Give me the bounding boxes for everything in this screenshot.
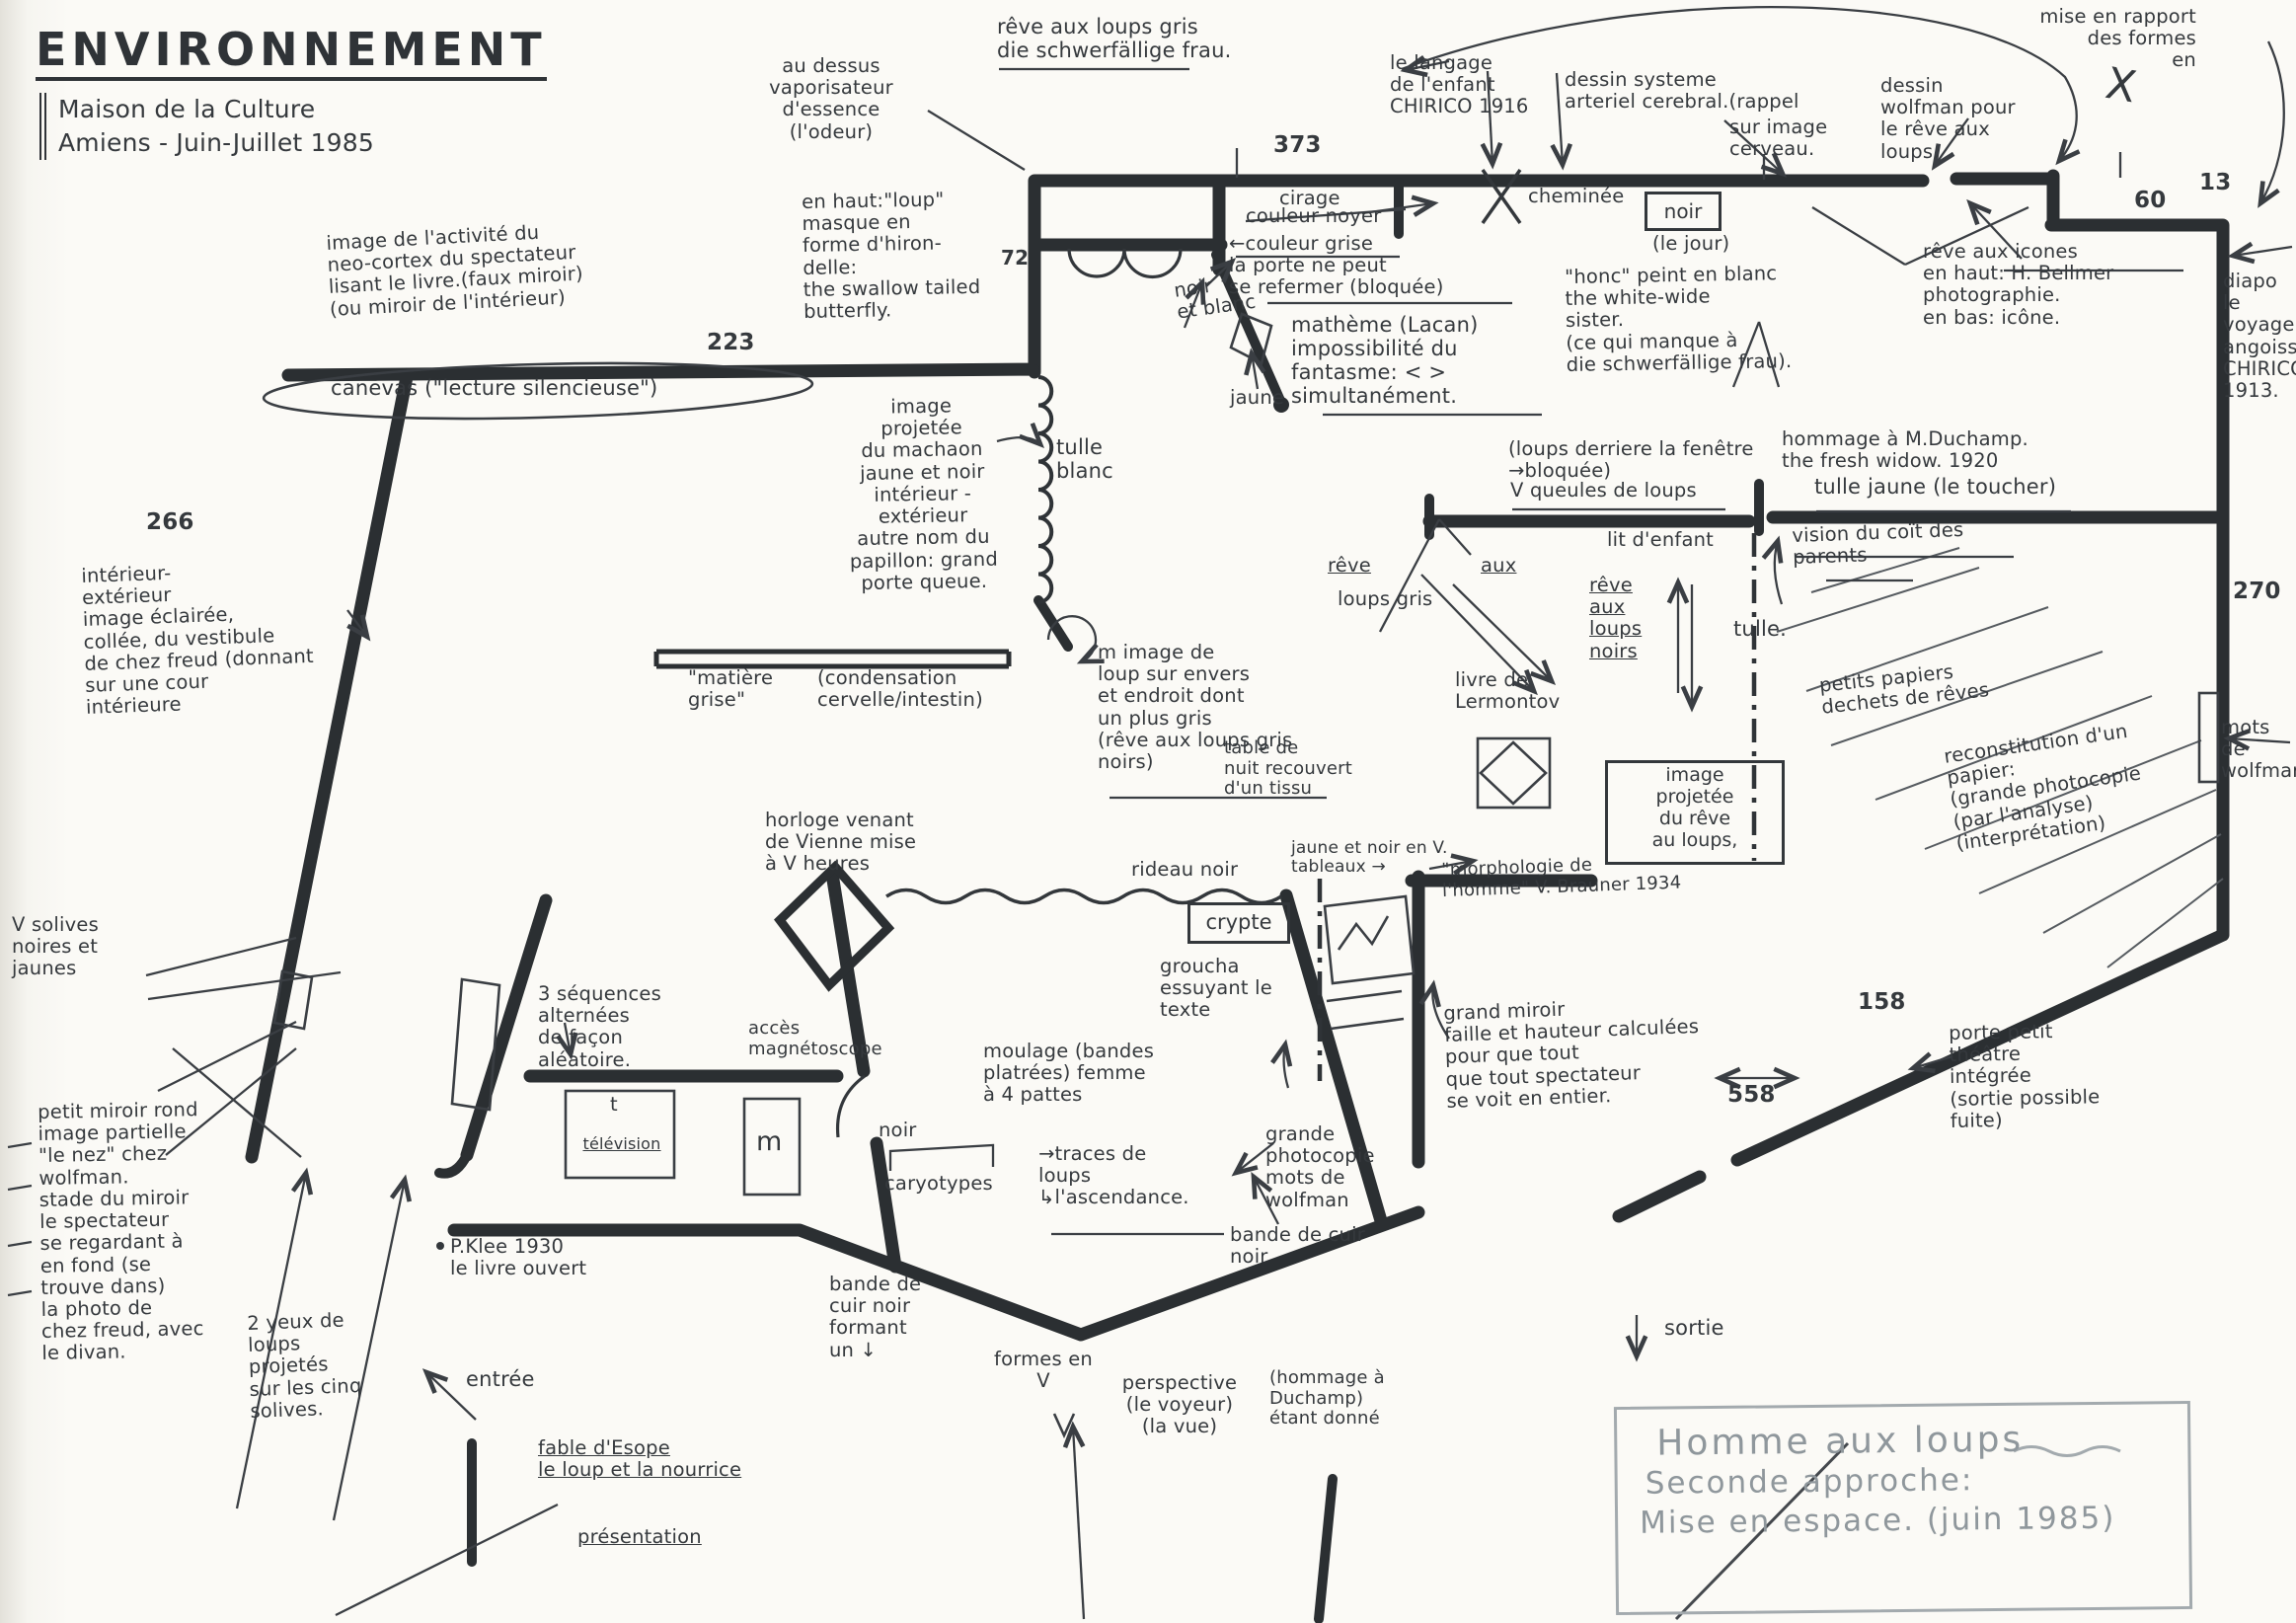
- note-couleur-noyer: couleur noyer: [1246, 205, 1381, 227]
- note-aux: aux: [1481, 555, 1516, 577]
- note-livre-lermontov: livre de Lermontov: [1455, 669, 1560, 713]
- note-honc-white-wide-sister: "honc" peint en blanc the white-wide sis…: [1565, 263, 1793, 376]
- label-box-noir: noir: [1645, 192, 1722, 231]
- note-queules-de-loups: V queules de loups: [1510, 480, 1697, 502]
- note-traces-de-loups: →traces de loups ↳l'ascendance.: [1038, 1143, 1189, 1209]
- note-acces-magnetoscope: accès magnétoscope: [748, 1019, 882, 1059]
- side-panel-rect: [452, 979, 499, 1110]
- note-moulage-femme: moulage (bandes platrées) femme à 4 patt…: [983, 1041, 1154, 1107]
- note-masque-hirondelle: en haut:"loup" masque en forme d'hiron- …: [802, 189, 981, 323]
- note-presentation: présentation: [577, 1526, 702, 1548]
- page-title: ENVIRONNEMENT: [36, 24, 547, 81]
- note-image-loup-envers: m image de loup sur envers et endroit do…: [1098, 642, 1292, 773]
- note-dessin-systeme-arteriel: dessin systeme arteriel cerebral.(rappel: [1565, 69, 1799, 113]
- note-groucha: groucha essuyant le texte: [1160, 956, 1272, 1022]
- pencil-line-homme-aux-loups: Homme aux loups: [1656, 1418, 2187, 1464]
- note-klee-livre-ouvert: P.Klee 1930 le livre ouvert: [450, 1236, 586, 1279]
- page-subtitle: Maison de la Culture Amiens - Juin-Juill…: [39, 93, 374, 160]
- pencil-line-mise-en-espace: Mise en espace. (juin 1985): [1640, 1500, 2188, 1541]
- note-matiere-grise: "matière grise": [688, 667, 773, 711]
- note-jaune: jaune: [1230, 387, 1284, 409]
- dim-373: 373: [1273, 132, 1322, 158]
- note-grande-photocopie: grande photocopie mots de wolfman: [1265, 1123, 1375, 1211]
- note-tulle-blanc: tulle blanc: [1056, 436, 1113, 484]
- note-mise-en-rapport: mise en rapport des formes en: [1959, 6, 2196, 72]
- note-diapo-chirico-1913: diapo le voyage angoissé CHIRICO 1913.: [2223, 270, 2296, 402]
- dim-13: 13: [2199, 170, 2231, 195]
- note-porte-bloquee: ←couleur grise la porte ne peut se refer…: [1229, 233, 1444, 299]
- note-vision-coit-parents: vision du coït des parents: [1792, 519, 1964, 569]
- tableau-zigzag: [1339, 916, 1388, 950]
- dim-158: 158: [1858, 989, 1906, 1015]
- note-hommage-duchamp-etant-donne: (hommage à Duchamp) étant donné: [1269, 1368, 1385, 1430]
- note-vaporisateur: au dessus vaporisateur d'essence (l'odeu…: [732, 55, 930, 143]
- note-t-tick: t: [610, 1094, 618, 1116]
- dim-266: 266: [146, 509, 194, 535]
- tulle-blanc-scallops: [1038, 377, 1051, 602]
- note-mots-de-wolfman: mots de wolfman: [2221, 717, 2296, 783]
- dim-223: 223: [707, 330, 755, 355]
- note-loups-derriere-fenetre: (loups derriere la fenêtre →bloquée): [1508, 438, 1754, 482]
- note-reve-loups-gris: rêve aux loups gris die schwerfällige fr…: [997, 16, 1231, 63]
- label-television: télévision: [571, 1135, 673, 1153]
- label-box-image-projetee-reve-loups: image projetée du rêve au loups,: [1605, 760, 1785, 865]
- label-m-box: m: [756, 1127, 783, 1158]
- note-hommage-duchamp-fresh-widow: hommage à M.Duchamp. the fresh widow. 19…: [1782, 428, 2028, 472]
- night-table-rect: [1478, 738, 1550, 808]
- note-lit-enfant: lit d'enfant: [1607, 529, 1714, 551]
- note-perspective-voyeur: perspective (le voyeur) (la vue): [1086, 1372, 1273, 1438]
- note-matheme-lacan: mathème (Lacan) impossibilité du fantasm…: [1291, 314, 1479, 409]
- note-langage-enfant-chirico: le langage de l'enfant CHIRICO 1916: [1390, 52, 1529, 118]
- note-noir-caryotypes: noir: [879, 1120, 917, 1141]
- note-tulle-jaune-toucher: tulle jaune (le toucher): [1814, 476, 2056, 500]
- matiere-grise-bar: [656, 652, 1009, 666]
- scanned-floor-plan-page: ENVIRONNEMENT Maison de la Culture Amien…: [0, 0, 2296, 1623]
- night-table-diamond: [1481, 742, 1546, 804]
- note-machaon-papillon: image projetée du machaon jaune et noir …: [807, 394, 1037, 595]
- note-sur-image-cerveau: sur image cerveau.: [1729, 116, 1827, 160]
- note-3-sequences: 3 séquences alternées de façon aléatoire…: [538, 983, 661, 1071]
- note-condensation: (condensation cervelle/intestin): [817, 667, 983, 711]
- note-tulle: tulle.: [1733, 618, 1787, 642]
- note-fable-esope: fable d'Esope le loup et la nourrice: [538, 1437, 741, 1481]
- label-box-crypte: crypte: [1187, 902, 1290, 944]
- note-sortie: sortie: [1664, 1317, 1724, 1341]
- note-reve-aux-loups-noirs: rêve aux loups noirs: [1589, 575, 1642, 662]
- note-bande-cuir-2: bande de cuir noir: [1230, 1224, 1365, 1268]
- note-entree: entrée: [466, 1368, 535, 1392]
- pencil-title-box: Homme aux loups Seconde approche: Mise e…: [1614, 1401, 2192, 1615]
- wolfman-words-rect: [2199, 693, 2218, 782]
- note-loups-gris: loups gris: [1338, 588, 1432, 610]
- note-petit-miroir-rond: petit miroir rond image partielle "le ne…: [38, 1099, 204, 1364]
- pencil-line-seconde-approche: Seconde approche:: [1645, 1460, 2188, 1502]
- note-horloge-vienne: horloge venant de Vienne mise à V heures: [765, 810, 916, 876]
- note-grand-miroir: grand miroir faille et hauteur calculées…: [1443, 994, 1702, 1113]
- dim-558: 558: [1727, 1082, 1776, 1108]
- dim-270: 270: [2233, 579, 2281, 604]
- note-porte-petit-theatre: porte petit théâtre intégrée (sortie pos…: [1949, 1020, 2101, 1132]
- klee-bullet: [436, 1242, 444, 1250]
- note-le-jour: (le jour): [1652, 233, 1729, 255]
- rideau-noir-wavy-line: [886, 890, 1281, 903]
- tableau-lines: [1327, 991, 1404, 1029]
- note-neocortex: image de l'activité du neo-cortex du spe…: [326, 219, 585, 320]
- note-rideau-noir: rideau noir: [1131, 859, 1238, 881]
- note-tableaux: jaune et noir en V. tableaux →: [1291, 839, 1448, 878]
- note-vestibule-freud: intérieur- extérieur image éclairée, col…: [81, 558, 316, 720]
- note-solives-noires-jaunes: V solives noires et jaunes: [12, 914, 99, 980]
- note-canevas-lecture: canevas ("lecture silencieuse"): [331, 377, 657, 401]
- note-cheminee: cheminée: [1528, 186, 1624, 207]
- note-morphologie-brauner: "morphologie de l'homme" V. Brauner 1934: [1441, 853, 1682, 901]
- note-reve-gris-stack: rêve: [1328, 555, 1371, 577]
- dim-60: 60: [2134, 188, 2166, 213]
- note-2-yeux-de-loups: 2 yeux de loups projetés sur les cinq so…: [247, 1309, 363, 1423]
- dim-72: 72: [1001, 247, 1029, 270]
- note-bande-cuir-1: bande de cuir noir formant un ↓: [829, 1274, 921, 1361]
- note-reve-aux-icones: rêve aux icones en haut: H. Bellmer phot…: [1923, 241, 2113, 329]
- note-caryotypes: caryotypes: [884, 1173, 993, 1195]
- note-dessin-wolfman: dessin wolfman pour le rêve aux loups.: [1880, 75, 2016, 163]
